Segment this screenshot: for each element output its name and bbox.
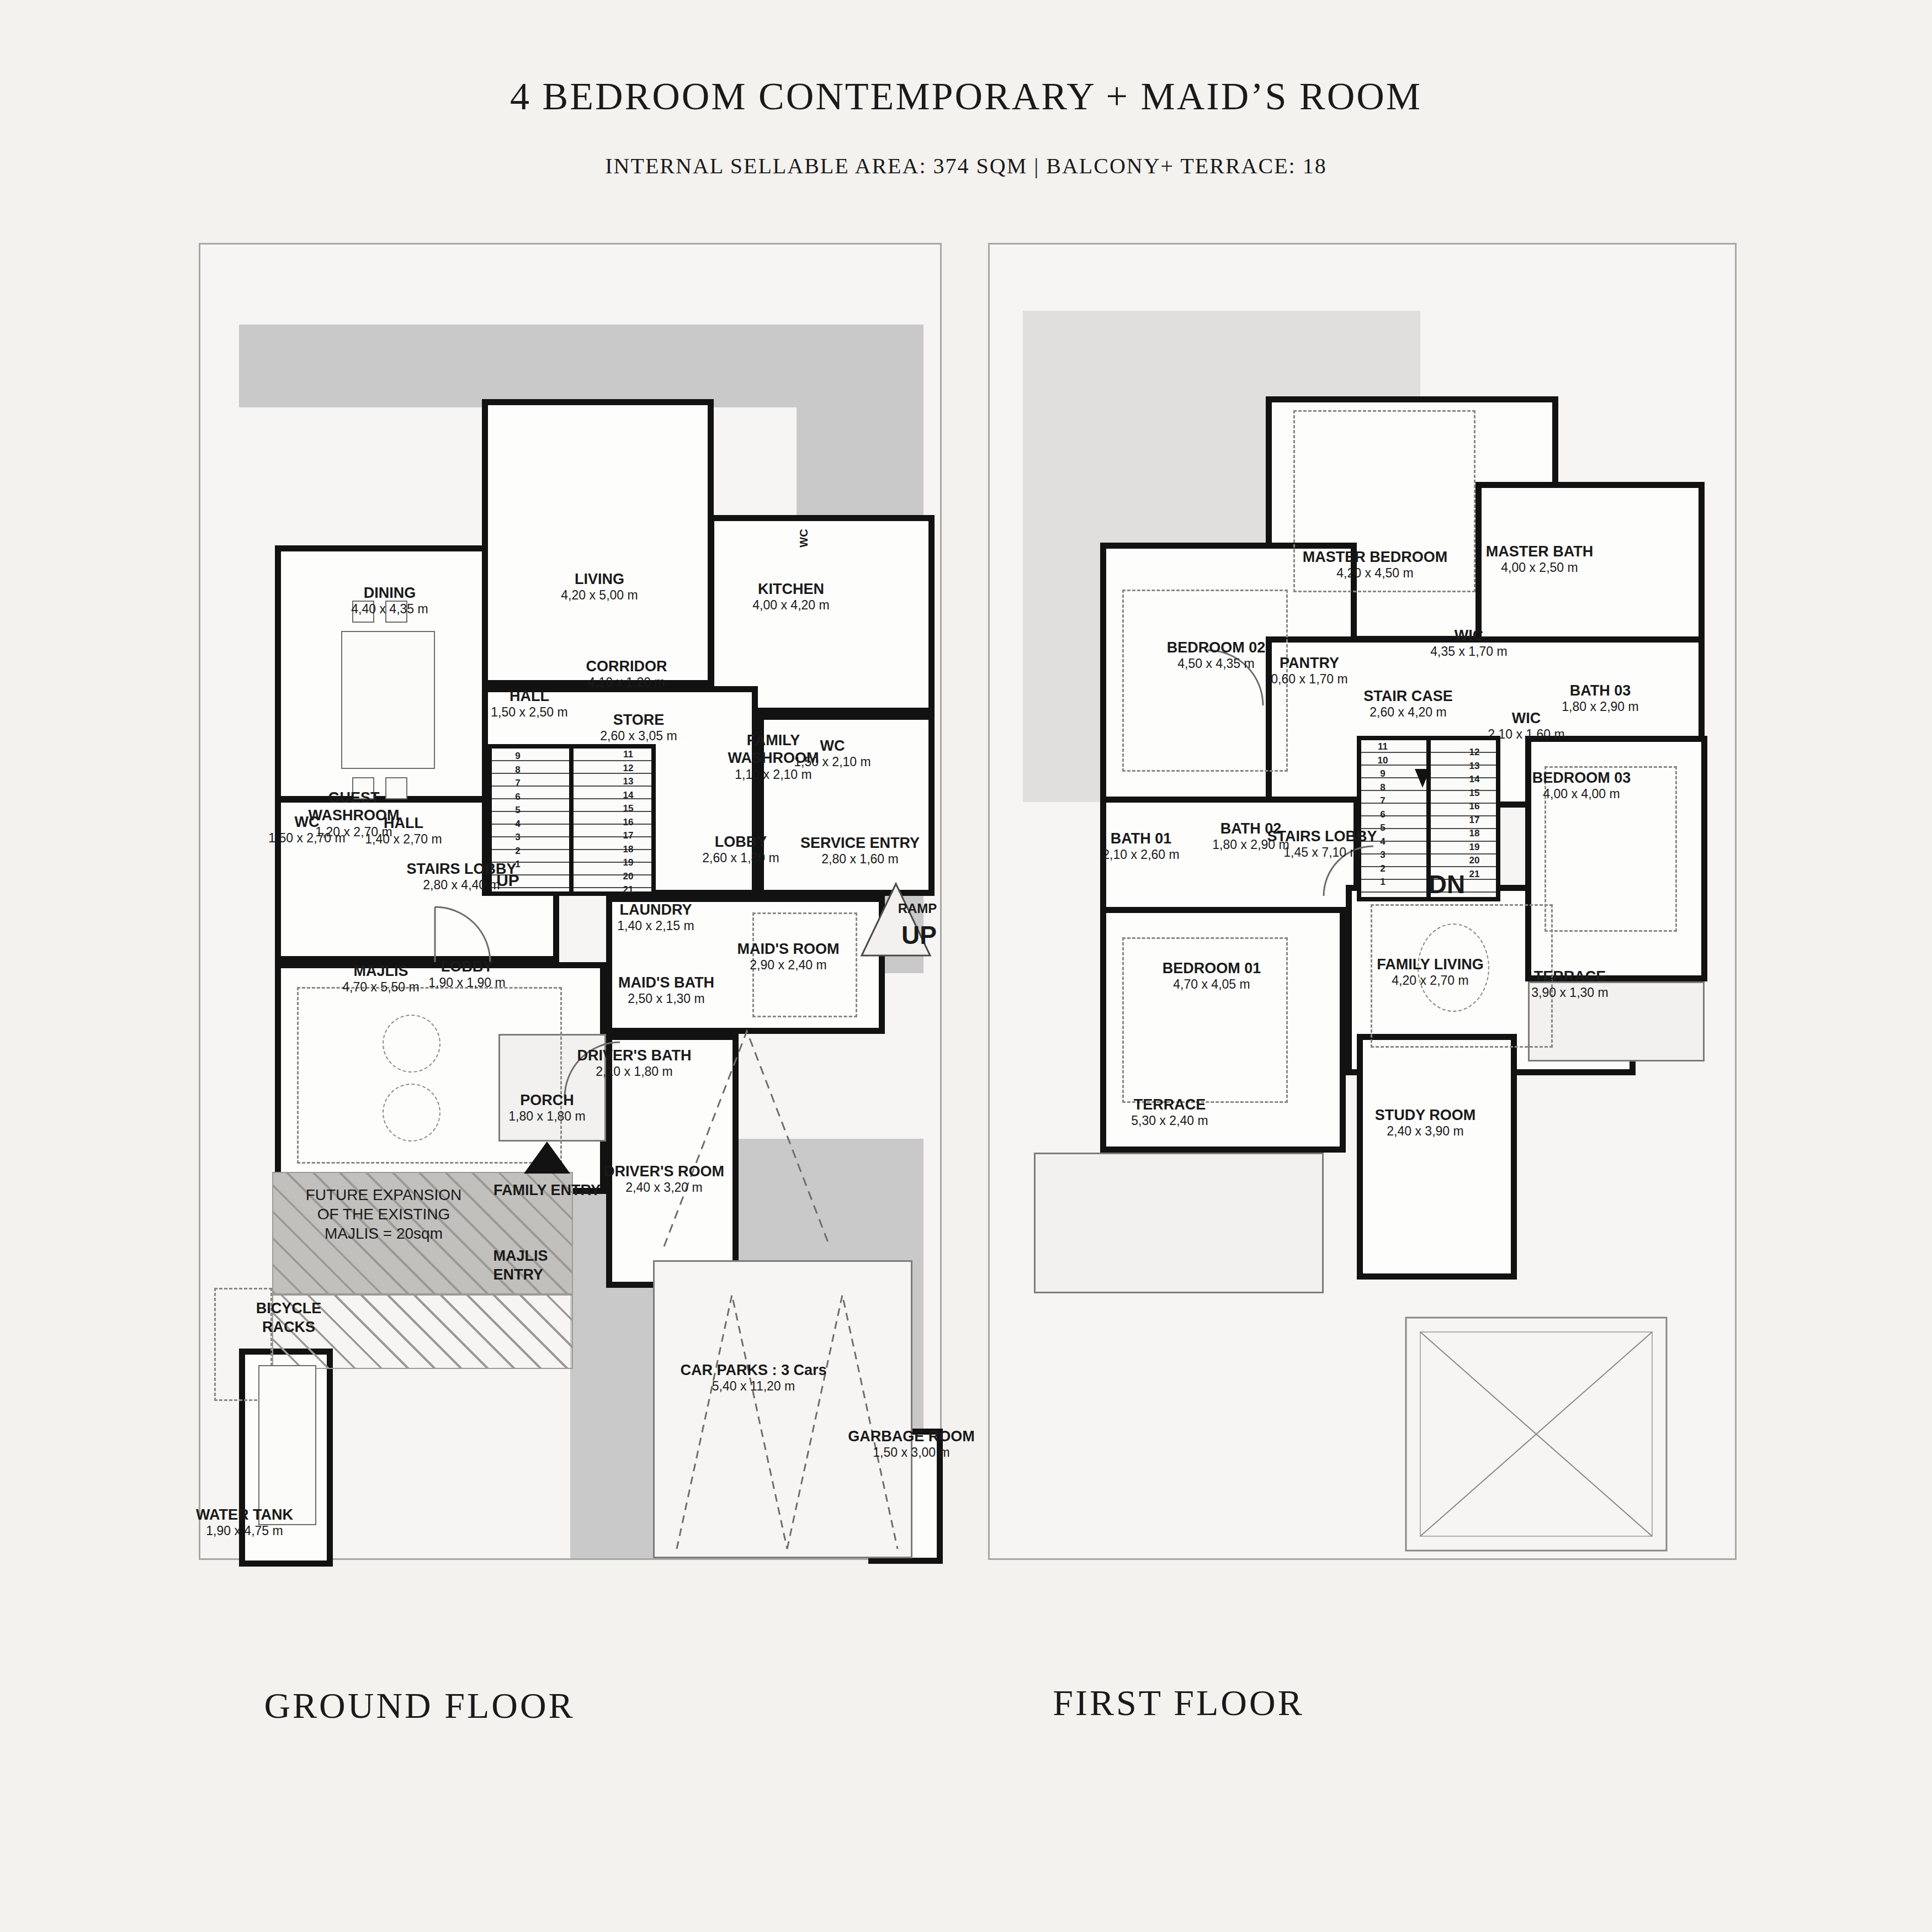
ground-floor-plot-boundary: 9 8 7 6 5 4 3 2 1 11 12 13 14 15 16 17 1… [199, 243, 942, 1560]
room-label-bath-01: BATH 012,10 x 2,60 m [1102, 830, 1179, 863]
room-label-bedroom-01: BEDROOM 014,70 x 4,05 m [1163, 959, 1261, 992]
room-label-maids-room: MAID'S ROOM2,90 x 2,40 m [737, 940, 840, 973]
family-entry-arrow [524, 1142, 570, 1174]
majlis-entry-label: MAJLIS ENTRY [493, 1247, 548, 1285]
dining-table [341, 631, 435, 769]
door-arc [432, 904, 493, 965]
room-label-bath-03: BATH 031,80 x 2,90 m [1562, 682, 1638, 715]
room-label-maids-bath: MAID'S BATH2,50 x 1,30 m [618, 974, 714, 1007]
room-label-majlis: MAJLIS4,70 x 5,50 m [342, 962, 419, 995]
room-label-wc-right: WC1,50 x 2,10 m [794, 737, 871, 770]
car-park-chevrons [655, 1262, 914, 1560]
stairs-down-label: DN [1429, 869, 1465, 901]
room-label-master-bath: MASTER BATH4,00 x 2,50 m [1486, 543, 1593, 576]
room-label-lobby-service: LOBBY2,60 x 1,80 m [702, 833, 779, 866]
first-floor-plot-boundary: 11 10 9 8 7 6 5 4 3 2 1 12 13 14 15 16 1… [988, 243, 1737, 1560]
room-label-pantry: PANTRY0,60 x 1,70 m [1271, 654, 1347, 687]
future-expansion-label: FUTURE EXPANSION OF THE EXISTING MAJLIS … [306, 1185, 462, 1243]
staircase-divider [569, 744, 574, 896]
car-park-area [653, 1260, 912, 1558]
ground-floor-caption: GROUND FLOOR [264, 1685, 575, 1727]
room-label-dining: DINING4,40 x 4,35 m [351, 584, 428, 617]
small-wc-label: WC [798, 529, 810, 547]
terrace-left-outline [1034, 1153, 1324, 1293]
stair-numbers-right: 11 12 13 14 15 16 17 18 19 20 21 [623, 748, 634, 897]
family-entry-label: FAMILY ENTRY [493, 1181, 601, 1200]
room-label-hall-lower: HALL1,40 x 2,70 m [365, 814, 442, 847]
stairs-up-label: UP [496, 870, 519, 891]
room-label-porch: PORCH1,80 x 1,80 m [508, 1091, 585, 1124]
room-label-wic-master: WIC4,35 x 1,70 m [1430, 627, 1507, 660]
room-label-water-tank: WATER TANK1,90 x 4,75 m [196, 1506, 293, 1539]
kitchen-walls [708, 515, 935, 714]
room-label-terrace-right: TERRACE3,90 x 1,30 m [1531, 968, 1608, 1001]
room-label-laundry: LAUNDRY1,40 x 2,15 m [617, 901, 694, 934]
room-label-master-bedroom: MASTER BEDROOM4,20 x 4,50 m [1303, 548, 1448, 581]
study-room-walls [1357, 1034, 1517, 1280]
majlis-sofa-outline [297, 987, 562, 1164]
room-label-hall-upper: HALL1,50 x 2,50 m [491, 687, 567, 720]
room-label-lobby-small: LOBBY1,90 x 1,90 m [428, 958, 505, 991]
room-label-stairs-lobby-first: STAIRS LOBBY1,45 x 7,10 m [1267, 827, 1377, 861]
room-label-drivers-bath: DRIVER'S BATH2,10 x 1,80 m [577, 1047, 692, 1080]
room-label-living: LIVING4,20 x 5,00 m [561, 570, 638, 603]
room-label-bedroom-02: BEDROOM 024,50 x 4,35 m [1167, 639, 1266, 672]
room-label-kitchen: KITCHEN4,00 x 4,20 m [752, 580, 829, 613]
roof-shade-left [1023, 545, 1103, 802]
ramp-up-label: UP [901, 920, 937, 952]
room-label-wic-03: WIC2,10 x 1,60 m [1488, 709, 1564, 742]
water-tank-body [258, 1365, 316, 1525]
room-label-garbage-room: GARBAGE ROOM1,50 x 3,00 m [848, 1427, 975, 1461]
pergola-square [1404, 1315, 1669, 1553]
room-label-stair-case: STAIR CASE2,60 x 4,20 m [1363, 687, 1453, 720]
floorplan-sheet: { "header": { "title": "4 BEDROOM CONTEM… [0, 0, 1932, 1932]
ramp-label: RAMP [898, 900, 937, 917]
page-subtitle: INTERNAL SELLABLE AREA: 374 SQM | BALCON… [605, 153, 1326, 179]
bicycle-racks-label: BICYCLE RACKS [256, 1299, 322, 1337]
room-label-family-living: FAMILY LIVING4,20 x 2,70 m [1377, 956, 1484, 989]
stair-numbers-left: 9 8 7 6 5 4 3 2 1 [515, 750, 520, 872]
page-title: 4 BEDROOM CONTEMPORARY + MAID’S ROOM [510, 75, 1422, 119]
room-label-bedroom-03: BEDROOM 034,00 x 4,00 m [1532, 769, 1631, 802]
driveway-top-right [797, 325, 923, 515]
majlis-table-round [383, 1084, 440, 1142]
room-label-drivers-room: DRIVER'S ROOM2,40 x 3,20 m [604, 1163, 724, 1196]
room-label-car-parks: CAR PARKS : 3 Cars5,40 x 11,20 m [680, 1361, 826, 1394]
stair-direction-arrow [1415, 769, 1430, 788]
room-label-service-entry: SERVICE ENTRY2,80 x 1,60 m [800, 834, 920, 867]
room-label-store: STORE2,60 x 3,05 m [600, 711, 677, 744]
room-label-corridor: CORRIDOR4,10 x 1,20 m [586, 657, 667, 691]
majlis-table-round [383, 1015, 440, 1073]
room-label-terrace-left: TERRACE5,30 x 2,40 m [1131, 1096, 1208, 1129]
living-walls [482, 399, 714, 686]
room-label-study-room: STUDY ROOM2,40 x 3,90 m [1375, 1106, 1476, 1139]
first-floor-caption: FIRST FLOOR [1053, 1682, 1304, 1724]
first-stair-numbers-right: 12 13 14 15 16 17 18 19 20 21 [1469, 746, 1480, 881]
first-stair-numbers-left: 11 10 9 8 7 6 5 4 3 2 1 [1378, 740, 1388, 889]
